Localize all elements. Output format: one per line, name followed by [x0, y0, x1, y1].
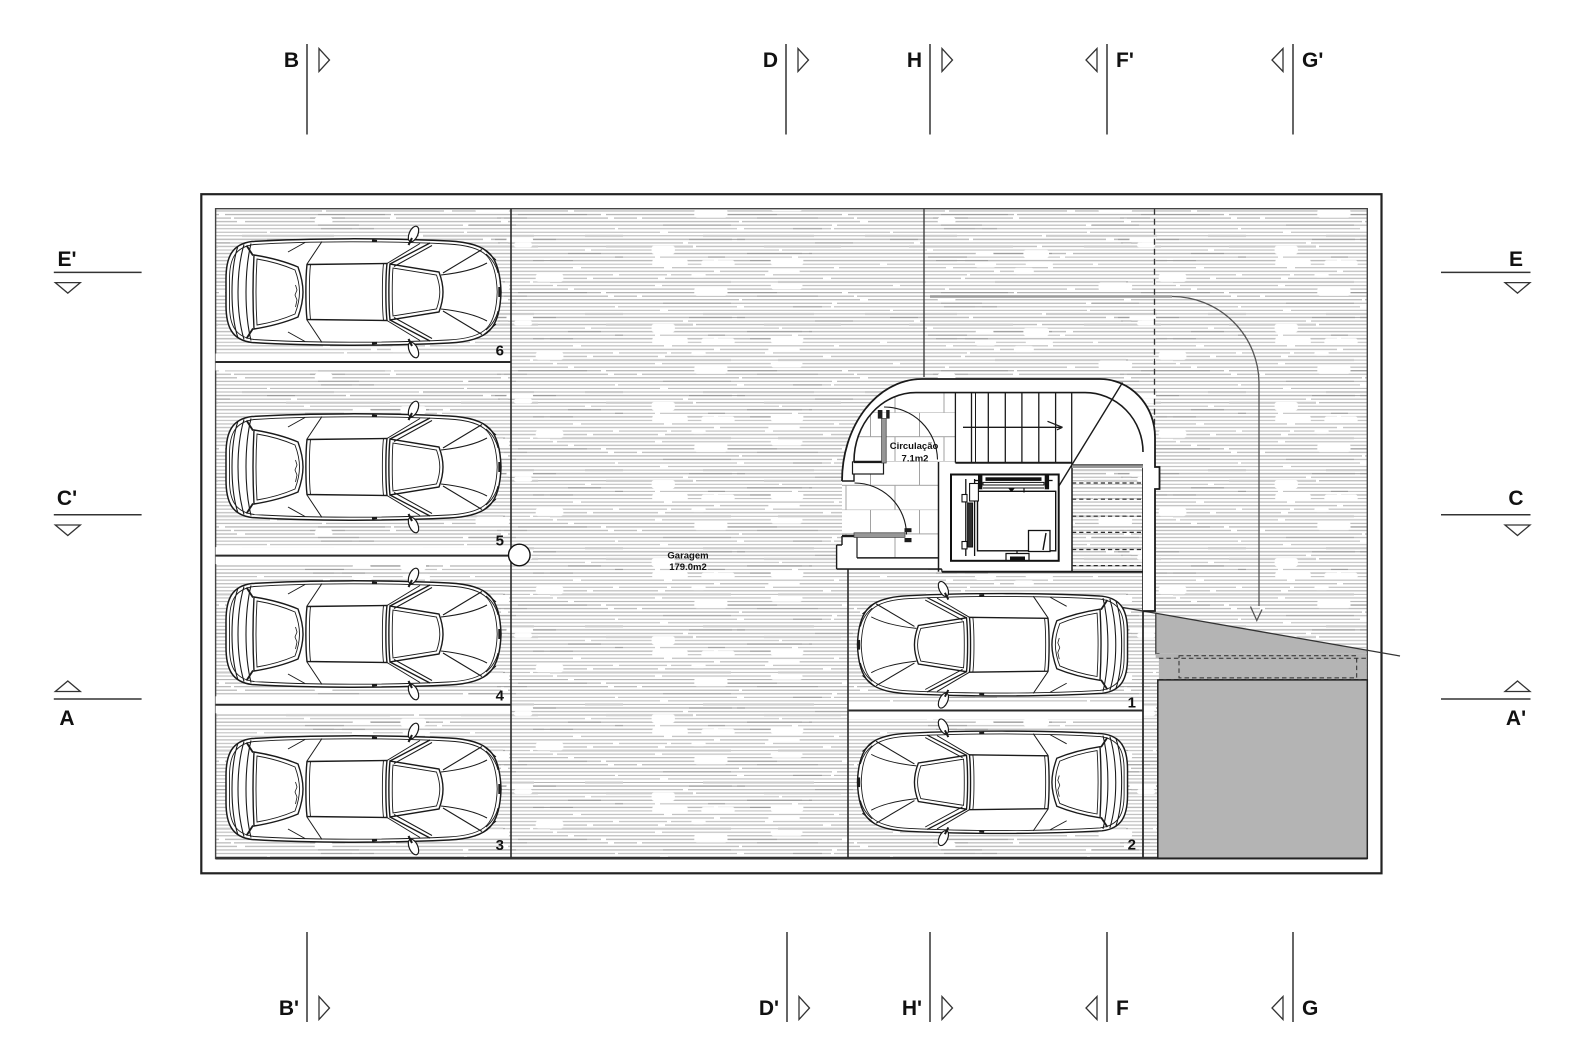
svg-text:B': B': [279, 997, 299, 1020]
svg-text:179.0m2: 179.0m2: [669, 562, 707, 573]
svg-text:D: D: [763, 49, 778, 72]
svg-text:5: 5: [496, 533, 504, 550]
svg-text:2: 2: [1128, 837, 1136, 854]
svg-text:A': A': [1506, 707, 1526, 730]
svg-text:F': F': [1116, 49, 1134, 72]
svg-text:4: 4: [496, 688, 505, 705]
svg-text:A: A: [59, 707, 74, 730]
svg-text:B: B: [284, 49, 299, 72]
svg-text:E: E: [1509, 248, 1523, 271]
svg-text:D': D': [759, 997, 779, 1020]
svg-text:F: F: [1116, 997, 1129, 1020]
svg-text:G': G': [1302, 49, 1323, 72]
svg-text:3: 3: [496, 837, 504, 854]
svg-text:H: H: [907, 49, 922, 72]
svg-text:H': H': [902, 997, 922, 1020]
svg-text:1: 1: [1128, 695, 1136, 712]
svg-text:Circulação: Circulação: [890, 441, 939, 452]
svg-text:G: G: [1302, 997, 1318, 1020]
svg-text:Garagem: Garagem: [667, 551, 708, 562]
svg-text:C: C: [1508, 487, 1523, 510]
svg-text:C': C': [57, 487, 77, 510]
svg-text:6: 6: [496, 343, 504, 360]
svg-text:7.1m2: 7.1m2: [902, 454, 929, 465]
svg-text:E': E': [57, 248, 76, 271]
